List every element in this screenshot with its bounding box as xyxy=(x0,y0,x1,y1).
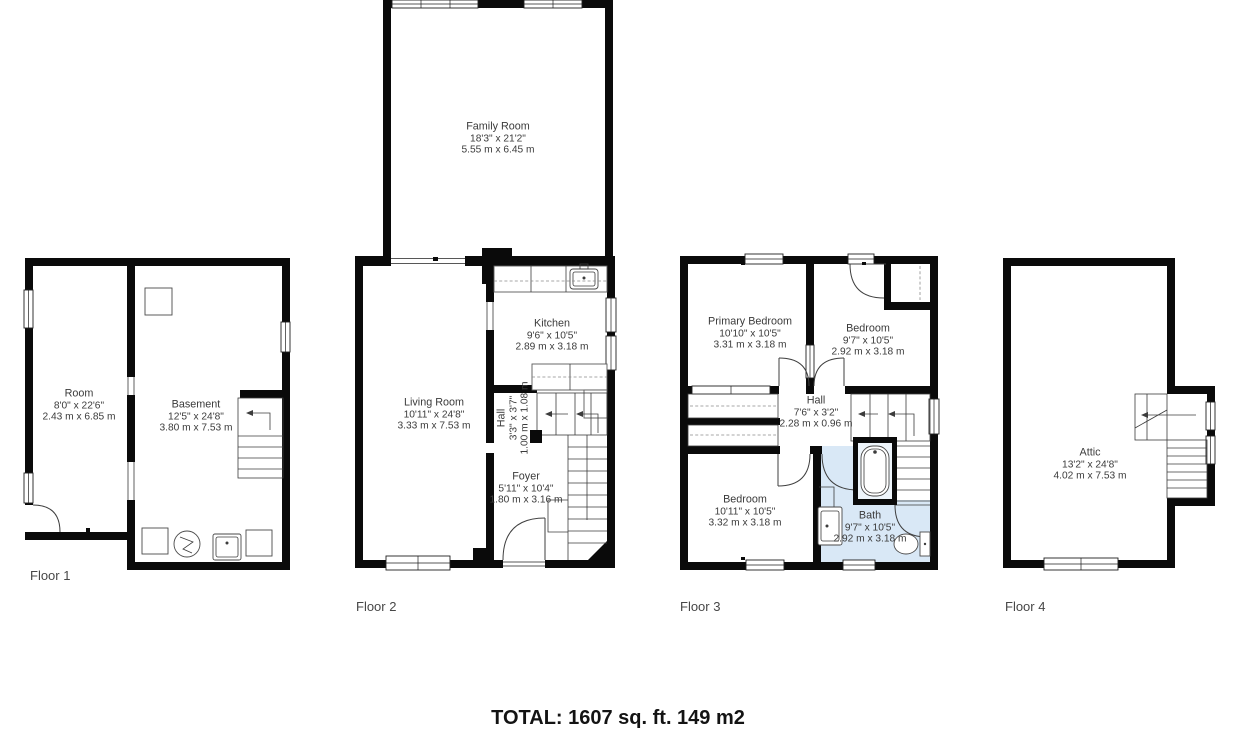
floor4-windows xyxy=(1044,402,1215,570)
floorplan-page: { "total_label": "TOTAL: 1607 sq. ft. 14… xyxy=(0,0,1240,720)
floor1-stairs xyxy=(238,390,283,478)
floor4-stairs xyxy=(1135,394,1207,498)
front-door xyxy=(503,518,545,568)
floor-1-label: Floor 1 xyxy=(30,568,70,583)
room-label-f4-attic: Attic 13'2" x 24'8" 4.02 m x 7.53 m xyxy=(1053,448,1126,483)
floor2-main-walls xyxy=(355,248,615,568)
floor1-entry-door xyxy=(33,505,60,532)
room-label-f2-hall: Hall 3'3" x 3'7" 1.00 m x 1.08 m xyxy=(497,381,532,454)
floor4-ticks xyxy=(1007,262,1090,456)
room-label-f2-family-room: Family Room 18'3" x 21'2" 5.55 m x 6.45 … xyxy=(461,122,534,157)
room-label-f3-bedroom2: Bedroom 9'7" x 10'5" 2.92 m x 3.18 m xyxy=(831,324,904,359)
water-heater-icon xyxy=(174,531,200,557)
floor4-walls xyxy=(1003,258,1215,568)
room-label-f3-hall: Hall 7'6" x 3'2" 2.28 m x 0.96 m xyxy=(779,396,852,431)
total-area-label: TOTAL: 1607 sq. ft. 149 m2 xyxy=(491,707,745,730)
floor-4-label: Floor 4 xyxy=(1005,599,1045,614)
room-label-f3-bedroom3: Bedroom 10'11" x 10'5" 3.32 m x 3.18 m xyxy=(708,495,781,530)
floor-2-label: Floor 2 xyxy=(356,599,396,614)
room-label-f1-room: Room 8'0" x 22'6" 2.43 m x 6.85 m xyxy=(42,389,115,424)
room-label-f3-primary-bedroom: Primary Bedroom 10'10" x 10'5" 3.31 m x … xyxy=(708,317,792,352)
room-label-f1-basement: Basement 12'5" x 24'8" 3.80 m x 7.53 m xyxy=(159,400,232,435)
floor-4-plan xyxy=(995,250,1223,580)
floor-2-plan xyxy=(350,0,620,600)
room-label-f3-bath: Bath 9'7" x 10'5" 2.92 m x 3.18 m xyxy=(833,511,906,546)
floor-3-label: Floor 3 xyxy=(680,599,720,614)
bathtub-icon xyxy=(853,437,897,505)
room-label-f2-kitchen: Kitchen 9'6" x 10'5" 2.89 m x 3.18 m xyxy=(515,319,588,354)
room-label-f2-living-room: Living Room 10'11" x 24'8" 3.33 m x 7.53… xyxy=(397,398,470,433)
room-label-f2-foyer: Foyer 5'11" x 10'4" 1.80 m x 3.16 m xyxy=(489,472,562,507)
utility-sink-icon xyxy=(213,534,241,560)
